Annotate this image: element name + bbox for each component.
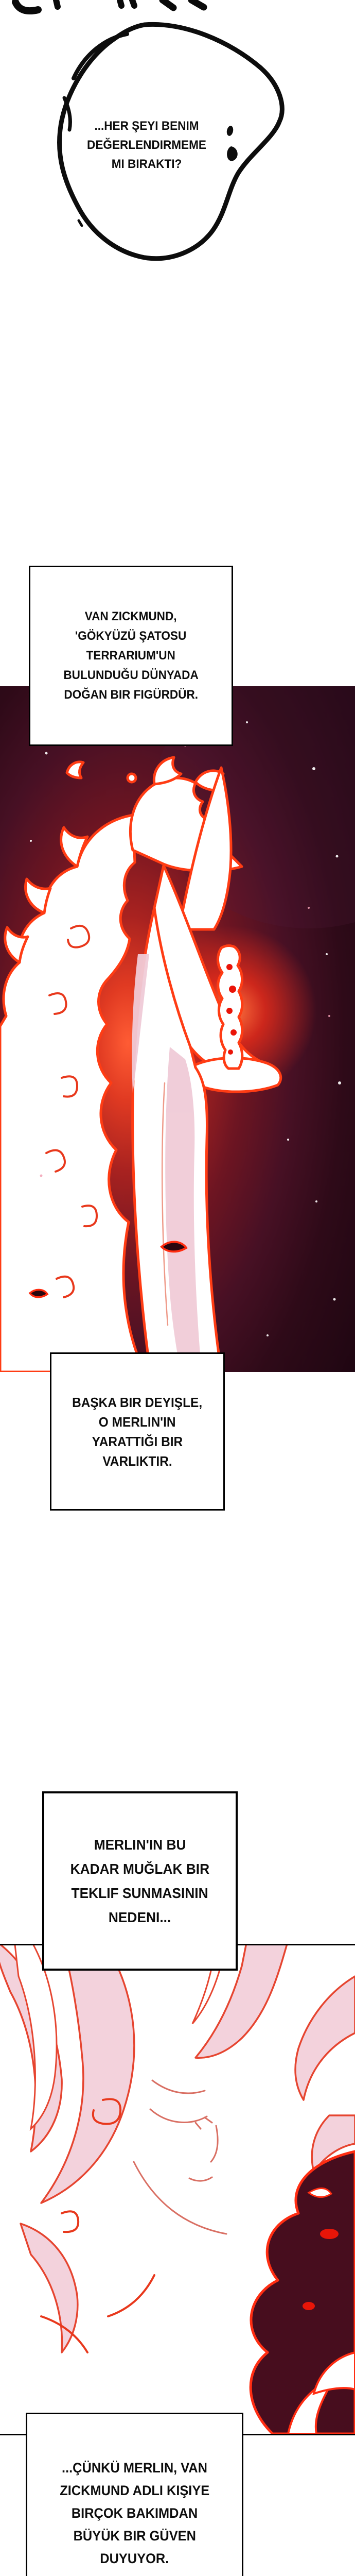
caption-line: BÜYÜK BIR GÜVEN	[73, 2524, 196, 2547]
bubble-line: MI BIRAKTI?	[77, 155, 217, 174]
caption-box-cunku-merlin: ...ÇÜNKÜ MERLIN, VAN ZICKMUND ADLI KIŞIY…	[26, 2413, 243, 2576]
panel-face-closeup	[0, 1944, 355, 2435]
panel-face-closeup-art	[0, 1945, 355, 2434]
caption-box-merlin-teklif: MERLIN'IN BU KADAR MUĞLAK BIR TEKLIF SUN…	[42, 1791, 238, 1971]
bubble-line: ...HER ŞEYI BENIM	[77, 116, 217, 135]
caption-line: KADAR MUĞLAK BIR	[70, 1857, 209, 1881]
comic-page: ...HER ŞEYI BENIM DEĞERLENDIRMEME MI BIR…	[0, 0, 355, 2576]
speech-bubble: ...HER ŞEYI BENIM DEĞERLENDIRMEME MI BIR…	[49, 21, 296, 268]
ember-crescent	[30, 1290, 47, 1297]
caption-line: ...ÇÜNKÜ MERLIN, VAN	[62, 2456, 207, 2479]
caption-line: DUYUYOR.	[100, 2547, 169, 2570]
panel-glowing-figure	[0, 686, 355, 1372]
caption-line: TERRARIUM'UN	[86, 646, 175, 666]
caption-line: VARLIKTIR.	[102, 1451, 172, 1471]
caption-line: BAŞKA BIR DEYIŞLE,	[72, 1393, 202, 1412]
caption-line: O MERLIN'IN	[99, 1412, 176, 1432]
cutoff-sfx-strokes	[0, 0, 355, 21]
panel-glowing-figure-art	[0, 686, 355, 1372]
caption-line: YARATTIĞI BIR	[92, 1432, 183, 1451]
caption-box-baska-bir-deyisle: BAŞKA BIR DEYIŞLE, O MERLIN'IN YARATTIĞI…	[50, 1352, 225, 1511]
caption-line: DOĞAN BIR FIGÜRDÜR.	[64, 685, 198, 705]
caption-line: BULUNDUĞU DÜNYADA	[63, 666, 198, 685]
bubble-line: DEĞERLENDIRMEME	[77, 135, 217, 155]
caption-line: BIRÇOK BAKIMDAN	[72, 2502, 198, 2524]
caption-box-van-zickmund: VAN ZICKMUND, 'GÖKYÜZÜ ŞATOSU TERRARIUM'…	[29, 566, 233, 746]
ember-crescent	[162, 1242, 186, 1251]
caption-line: MERLIN'IN BU	[94, 1833, 186, 1857]
speech-bubble-text: ...HER ŞEYI BENIM DEĞERLENDIRMEME MI BIR…	[72, 116, 221, 174]
caption-line: 'GÖKYÜZÜ ŞATOSU	[75, 626, 186, 646]
caption-line: VAN ZICKMUND,	[85, 607, 177, 626]
caption-line: NEDENI...	[109, 1905, 171, 1929]
caption-line: TEKLIF SUNMASININ	[72, 1881, 208, 1905]
caption-line: ZICKMUND ADLI KIŞIYE	[60, 2479, 209, 2502]
